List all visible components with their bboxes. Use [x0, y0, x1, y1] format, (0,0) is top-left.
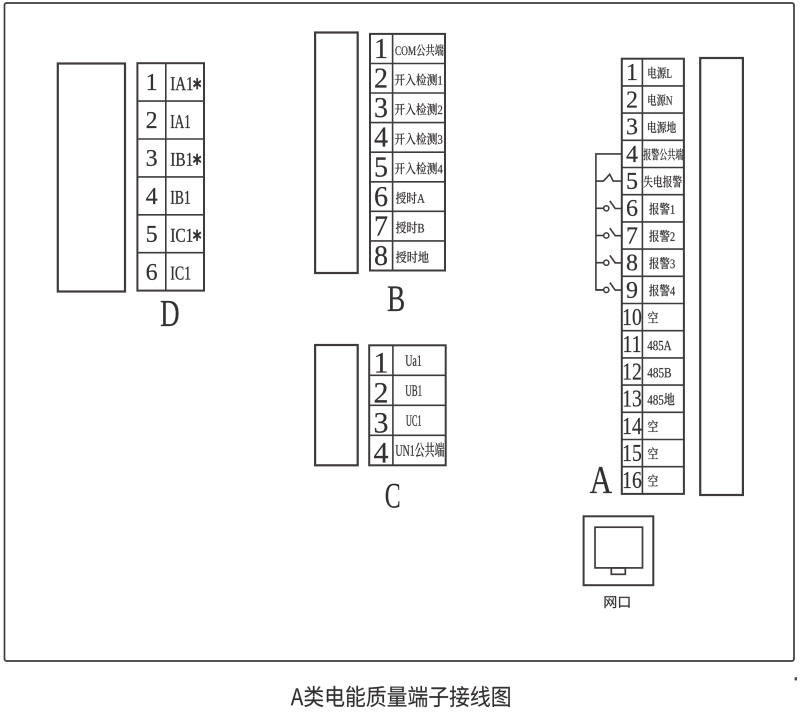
- svg-text:B: B: [387, 279, 405, 320]
- svg-text:4: 4: [374, 436, 389, 469]
- svg-text:6: 6: [146, 260, 158, 286]
- svg-text:3: 3: [146, 146, 158, 172]
- svg-text:16: 16: [622, 466, 642, 493]
- svg-text:4: 4: [374, 123, 388, 154]
- svg-text:14: 14: [622, 412, 642, 439]
- svg-text:9: 9: [626, 278, 638, 304]
- svg-text:5: 5: [626, 169, 638, 195]
- svg-text:1: 1: [626, 60, 638, 86]
- svg-text:5: 5: [146, 222, 158, 248]
- svg-text:C: C: [385, 476, 401, 516]
- svg-text:1: 1: [374, 34, 388, 65]
- svg-text:5: 5: [374, 152, 388, 183]
- svg-text:6: 6: [626, 196, 638, 222]
- svg-text:3: 3: [626, 115, 638, 141]
- svg-text:7: 7: [374, 211, 388, 242]
- svg-text:15: 15: [622, 439, 642, 466]
- svg-text:1: 1: [146, 70, 158, 96]
- svg-text:11: 11: [623, 330, 642, 357]
- svg-text:8: 8: [374, 241, 388, 272]
- svg-text:2: 2: [374, 376, 389, 409]
- svg-text:A: A: [590, 458, 613, 501]
- svg-text:3: 3: [374, 93, 388, 124]
- svg-text:6: 6: [374, 182, 388, 213]
- svg-text:13: 13: [622, 385, 642, 412]
- svg-text:12: 12: [622, 358, 642, 385]
- svg-text:D: D: [160, 294, 179, 336]
- svg-text:2: 2: [146, 108, 158, 134]
- svg-text:10: 10: [622, 303, 642, 330]
- svg-text:1: 1: [374, 346, 389, 379]
- svg-text:2: 2: [626, 87, 638, 113]
- svg-text:8: 8: [626, 251, 638, 277]
- svg-text:2: 2: [374, 64, 388, 95]
- svg-text:4: 4: [626, 142, 638, 168]
- svg-text:3: 3: [374, 406, 389, 439]
- svg-text:7: 7: [626, 223, 638, 249]
- svg-text:4: 4: [146, 184, 158, 210]
